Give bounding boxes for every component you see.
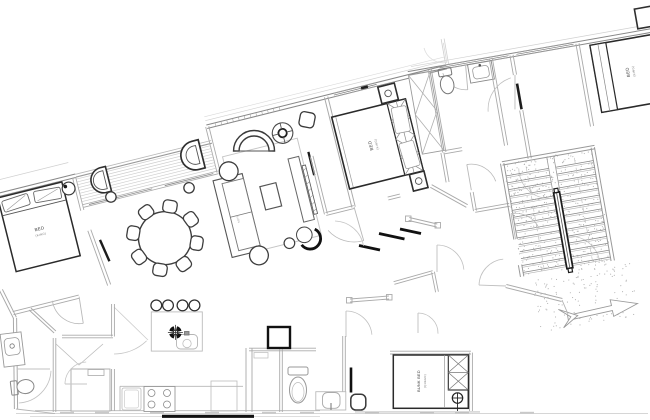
svg-text:(QUEEN): (QUEEN) [423, 374, 427, 388]
svg-text:BUNK BED: BUNK BED [417, 370, 421, 392]
